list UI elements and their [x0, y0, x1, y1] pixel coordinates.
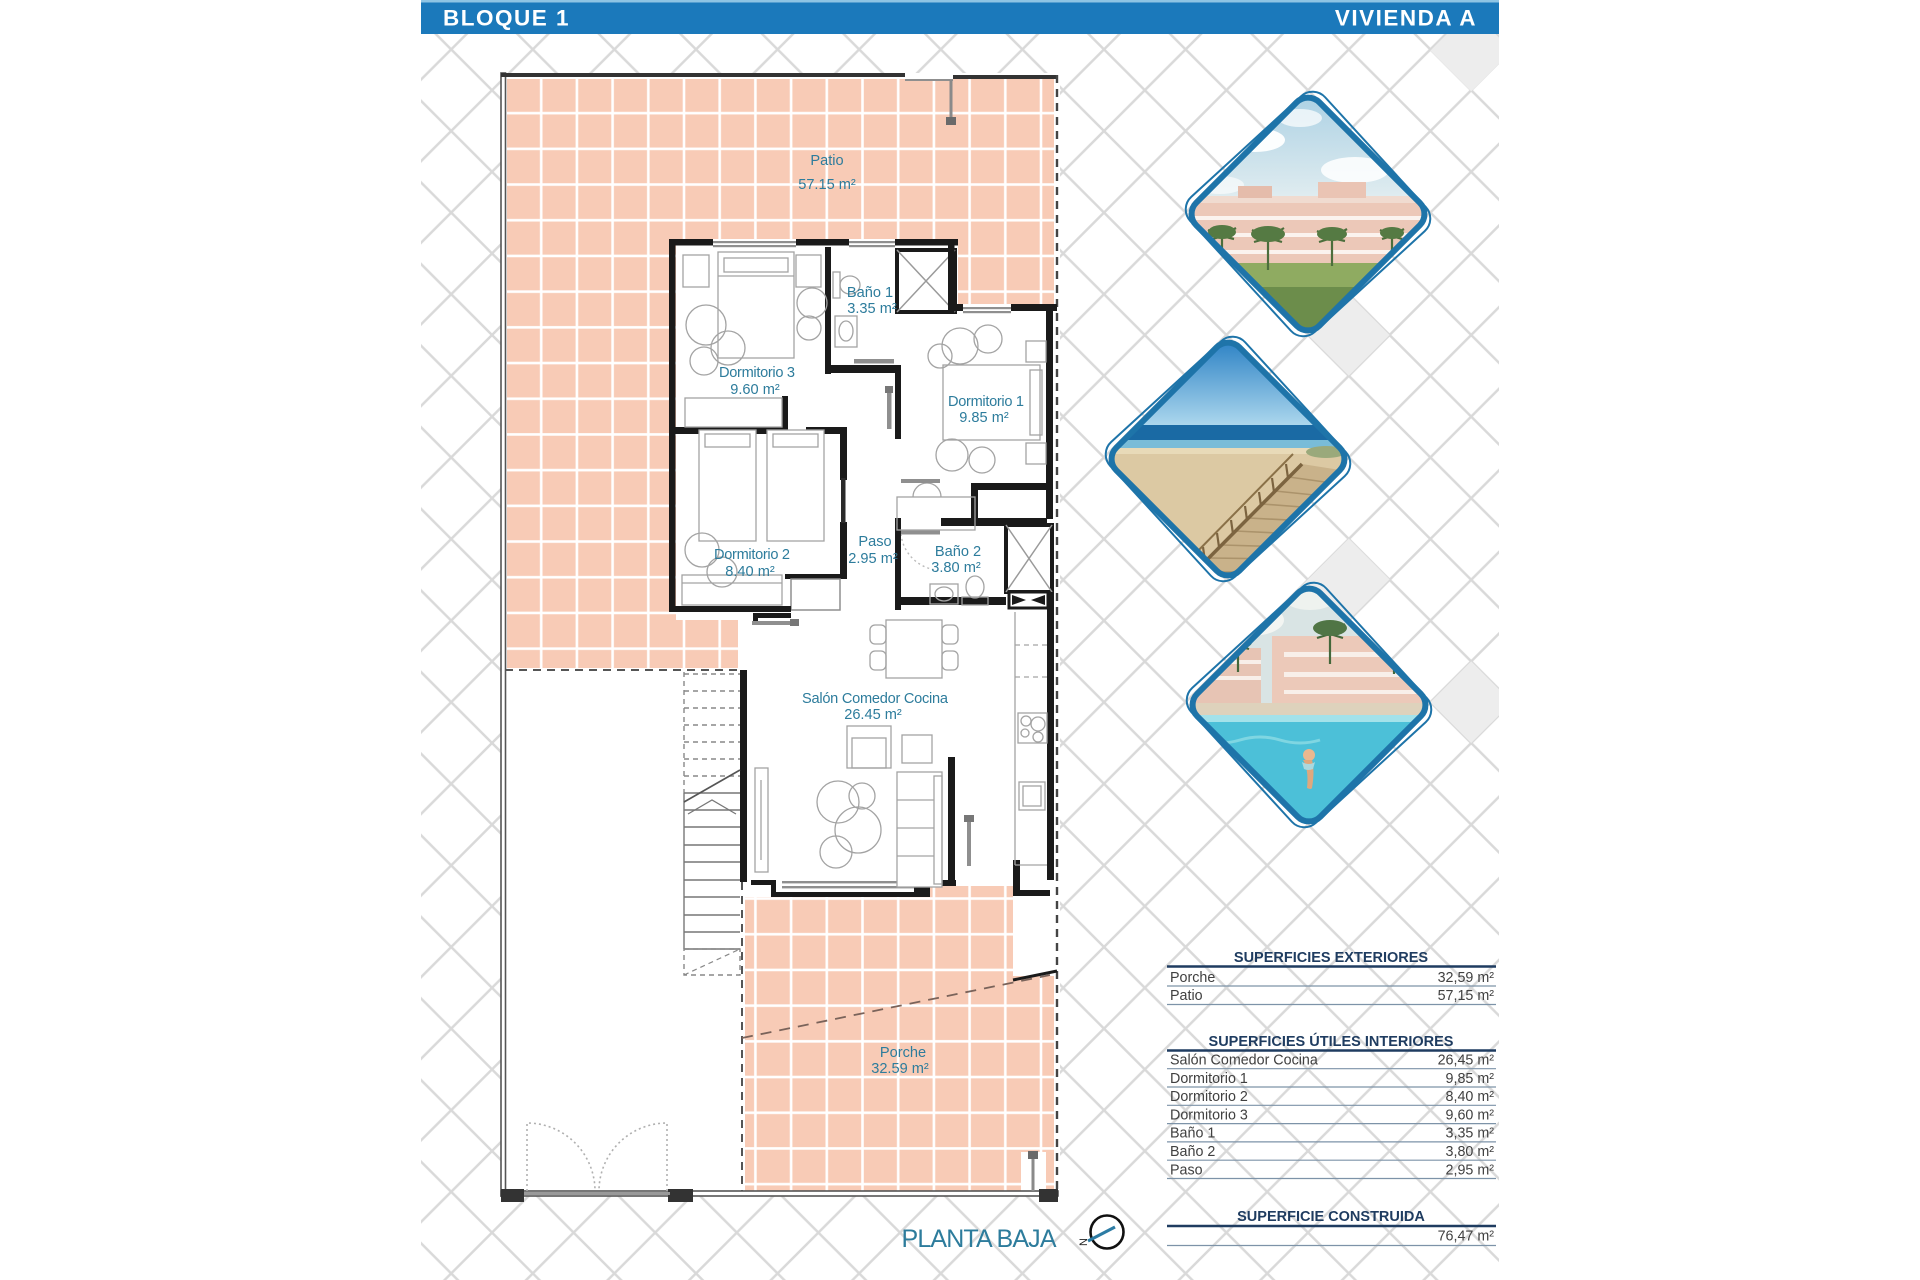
svg-text:SUPERFICIE CONSTRUIDA: SUPERFICIE CONSTRUIDA	[1237, 1209, 1425, 1225]
svg-text:26.45 m²: 26.45 m²	[844, 707, 902, 723]
svg-text:Paso: Paso	[858, 534, 891, 550]
svg-text:BLOQUE 1: BLOQUE 1	[443, 6, 570, 31]
svg-text:3.80 m²: 3.80 m²	[931, 560, 981, 576]
svg-text:26,45 m²: 26,45 m²	[1438, 1053, 1495, 1069]
svg-text:Salón Comedor Cocina: Salón Comedor Cocina	[1170, 1053, 1318, 1069]
svg-text:Porche: Porche	[880, 1045, 926, 1061]
svg-text:Dormitorio 3: Dormitorio 3	[1170, 1107, 1248, 1123]
svg-text:Baño 2: Baño 2	[1170, 1144, 1215, 1160]
svg-text:VIVIENDA A: VIVIENDA A	[1335, 6, 1477, 31]
svg-text:3,80 m²: 3,80 m²	[1446, 1144, 1495, 1160]
svg-text:Dormitorio 2: Dormitorio 2	[1170, 1089, 1248, 1105]
svg-text:Salón Comedor Cocina: Salón Comedor Cocina	[802, 691, 949, 707]
svg-text:57.15 m²: 57.15 m²	[798, 177, 856, 193]
svg-text:SUPERFICIES ÚTILES INTERIORES: SUPERFICIES ÚTILES INTERIORES	[1209, 1032, 1454, 1050]
svg-text:57,15 m²: 57,15 m²	[1438, 988, 1495, 1004]
svg-text:9.60 m²: 9.60 m²	[730, 382, 780, 398]
svg-text:3.35 m²: 3.35 m²	[847, 301, 897, 317]
svg-text:Baño 1: Baño 1	[847, 285, 893, 301]
svg-text:3,35 m²: 3,35 m²	[1446, 1126, 1495, 1142]
svg-text:Dormitorio 1: Dormitorio 1	[1170, 1071, 1248, 1087]
svg-text:8.40 m²: 8.40 m²	[725, 564, 775, 580]
svg-text:9,60 m²: 9,60 m²	[1446, 1107, 1495, 1123]
svg-text:Dormitorio 2: Dormitorio 2	[714, 547, 790, 563]
svg-text:Porche: Porche	[1170, 970, 1215, 986]
svg-text:Baño 1: Baño 1	[1170, 1126, 1215, 1142]
svg-text:N: N	[1078, 1238, 1090, 1246]
svg-text:PLANTA BAJA: PLANTA BAJA	[902, 1225, 1057, 1253]
svg-text:Baño 2: Baño 2	[935, 544, 981, 560]
svg-text:Patio: Patio	[1170, 988, 1203, 1004]
svg-text:32,59 m²: 32,59 m²	[1438, 970, 1495, 986]
svg-text:32.59 m²: 32.59 m²	[871, 1061, 929, 1077]
svg-text:Patio: Patio	[810, 153, 843, 169]
svg-text:Dormitorio 3: Dormitorio 3	[719, 365, 795, 381]
svg-text:8,40 m²: 8,40 m²	[1446, 1089, 1495, 1105]
svg-text:9,85 m²: 9,85 m²	[1446, 1071, 1495, 1087]
svg-text:2,95 m²: 2,95 m²	[1446, 1162, 1495, 1178]
svg-text:Paso: Paso	[1170, 1162, 1203, 1178]
svg-text:76,47 m²: 76,47 m²	[1438, 1229, 1495, 1245]
svg-text:Dormitorio 1: Dormitorio 1	[948, 394, 1024, 410]
svg-text:9.85 m²: 9.85 m²	[959, 410, 1009, 426]
svg-text:2.95 m²: 2.95 m²	[848, 551, 898, 567]
svg-text:SUPERFICIES EXTERIORES: SUPERFICIES EXTERIORES	[1234, 950, 1429, 966]
